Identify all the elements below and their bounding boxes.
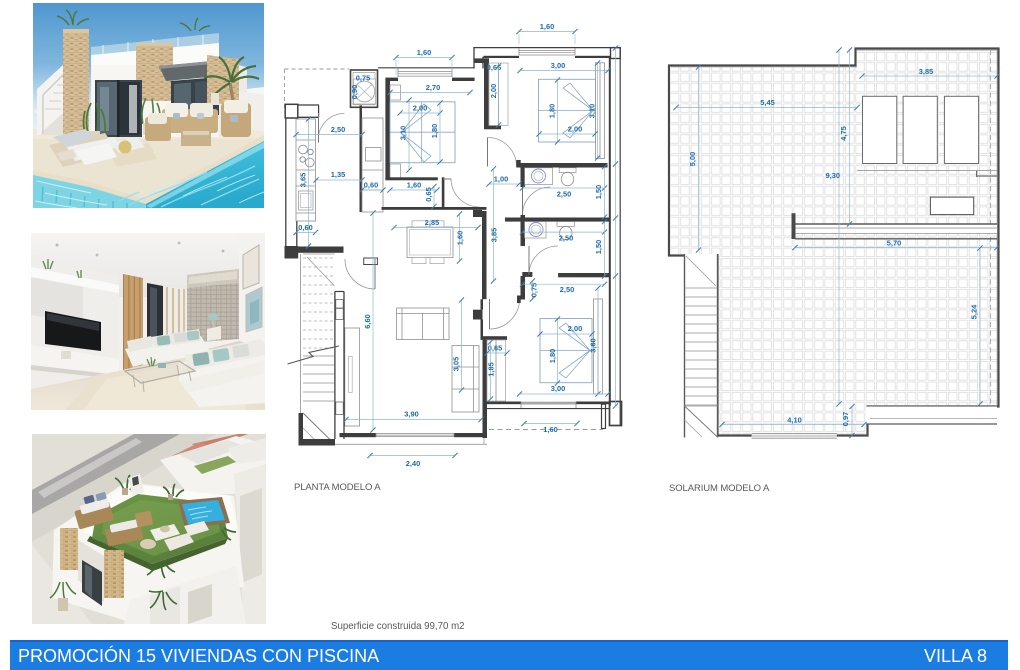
svg-text:1,85: 1,85 (487, 362, 496, 376)
svg-text:1,60: 1,60 (543, 425, 557, 434)
svg-text:5,24: 5,24 (970, 304, 979, 319)
svg-text:3,05: 3,05 (452, 357, 461, 371)
svg-text:3,10: 3,10 (588, 104, 597, 118)
svg-text:0,65: 0,65 (487, 63, 501, 72)
svg-text:0,90: 0,90 (350, 85, 359, 99)
svg-text:1,60: 1,60 (407, 181, 421, 190)
svg-text:4,75: 4,75 (839, 126, 848, 140)
svg-text:0,75: 0,75 (530, 283, 539, 297)
svg-text:2,40: 2,40 (406, 459, 420, 468)
svg-text:3,65: 3,65 (299, 173, 308, 187)
svg-text:2,50: 2,50 (557, 190, 571, 199)
svg-text:2,50: 2,50 (331, 125, 345, 134)
svg-text:3,85: 3,85 (919, 67, 933, 76)
svg-text:4,10: 4,10 (787, 416, 801, 425)
svg-text:1,00: 1,00 (494, 175, 508, 184)
svg-text:0,65: 0,65 (488, 344, 502, 353)
svg-text:2,00: 2,00 (489, 84, 498, 98)
svg-text:1,60: 1,60 (417, 48, 431, 57)
svg-text:3,90: 3,90 (404, 410, 418, 419)
svg-text:0,65: 0,65 (424, 187, 433, 201)
svg-text:9,30: 9,30 (826, 171, 840, 180)
svg-text:2,50: 2,50 (560, 285, 574, 294)
svg-text:5,45: 5,45 (760, 98, 774, 107)
svg-text:2,70: 2,70 (426, 83, 440, 92)
svg-text:6,60: 6,60 (363, 314, 372, 328)
svg-text:0,75: 0,75 (356, 74, 370, 83)
svg-text:3,00: 3,00 (551, 384, 565, 393)
svg-text:3,00: 3,00 (551, 61, 565, 70)
svg-text:5,00: 5,00 (688, 152, 697, 166)
svg-text:0,60: 0,60 (364, 181, 378, 190)
svg-text:1,50: 1,50 (594, 240, 603, 254)
svg-text:3,60: 3,60 (589, 338, 598, 352)
svg-text:3,10: 3,10 (399, 126, 408, 140)
svg-text:1,35: 1,35 (331, 170, 345, 179)
svg-text:1,50: 1,50 (594, 185, 603, 199)
svg-text:0,60: 0,60 (298, 223, 312, 232)
svg-text:2,00: 2,00 (413, 104, 427, 113)
svg-text:1,60: 1,60 (540, 22, 554, 31)
svg-text:1,80: 1,80 (548, 349, 557, 363)
svg-text:3,85: 3,85 (490, 228, 499, 242)
svg-text:5,70: 5,70 (887, 239, 901, 248)
svg-text:1,60: 1,60 (456, 231, 465, 245)
svg-text:0,97: 0,97 (841, 412, 850, 426)
svg-text:2,85: 2,85 (425, 218, 439, 227)
svg-text:2,00: 2,00 (568, 324, 582, 333)
svg-text:1,80: 1,80 (430, 124, 439, 138)
svg-text:2,00: 2,00 (568, 125, 582, 134)
svg-text:1,80: 1,80 (548, 104, 557, 118)
svg-text:2,50: 2,50 (559, 234, 573, 243)
